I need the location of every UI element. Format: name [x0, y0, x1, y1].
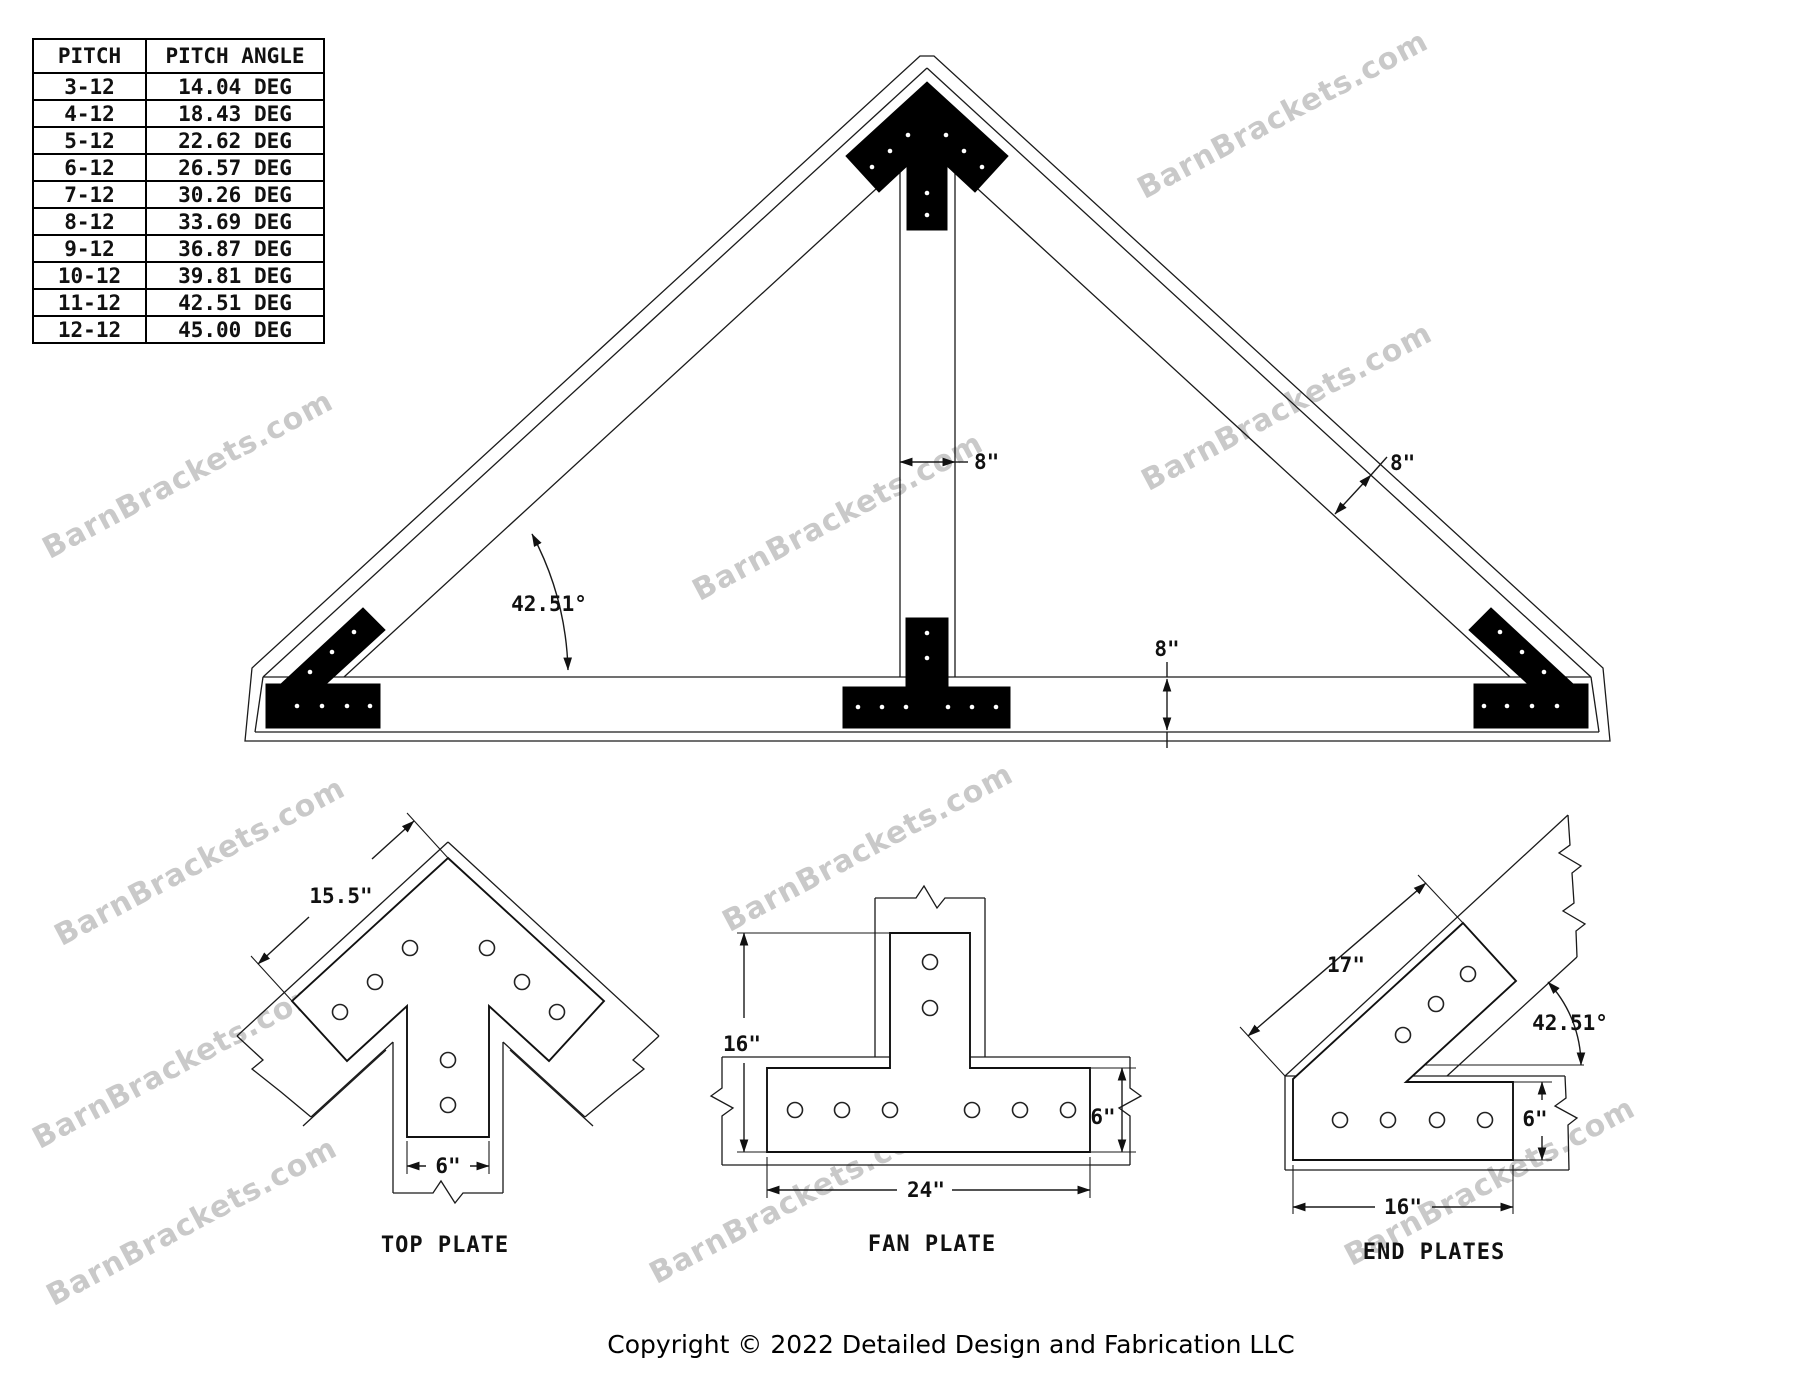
end-plates-bar-height-dim: 6": [1522, 1107, 1547, 1131]
chord-depth-dim: 8": [1154, 637, 1179, 661]
right-heel-plate: [1469, 608, 1588, 728]
end-plates-bar-length-dim: 16": [1384, 1195, 1422, 1219]
end-plates-diagonal-dim: 17": [1327, 953, 1365, 977]
rafter-depth-dim: 8": [1390, 451, 1415, 475]
end-plates-title: END PLATES: [1363, 1240, 1505, 1265]
top-plate-detail: 15.5" 6" TOP PLATE: [237, 813, 659, 1258]
fan-plate-detail: 16" 6" 24" FAN PLATE: [711, 886, 1141, 1257]
fan-plate-width-dim: 24": [907, 1178, 945, 1202]
copyright-notice: Copyright © 2022 Detailed Design and Fab…: [607, 1330, 1294, 1359]
apex-plate: [846, 82, 1008, 230]
fan-plate-title: FAN PLATE: [868, 1232, 996, 1257]
truss-steel-plates: [266, 82, 1588, 728]
end-plates-angle-dim: 42.51°: [1532, 1011, 1608, 1035]
top-plate-edge-length-dim: 15.5": [309, 884, 372, 908]
end-plates-detail: 17" 42.51° 6" 16" END PLATES: [1240, 815, 1608, 1265]
drawing-sheet: BarnBrackets.com BarnBrackets.com BarnBr…: [0, 0, 1800, 1391]
pitch-angle-dim: 42.51°: [511, 592, 587, 616]
king-post-width-dim: 8": [974, 450, 999, 474]
truss-elevation: 8" 8" 8" 42.51°: [245, 56, 1610, 748]
left-heel-plate: [266, 608, 385, 728]
fan-plate-bar-height-dim: 6": [1090, 1105, 1115, 1129]
truss-bracket-drawing: 8" 8" 8" 42.51°: [0, 0, 1800, 1391]
top-plate-stem-width-dim: 6": [435, 1154, 460, 1178]
fan-plate-height-dim: 16": [723, 1032, 761, 1056]
top-plate-title: TOP PLATE: [381, 1233, 509, 1258]
